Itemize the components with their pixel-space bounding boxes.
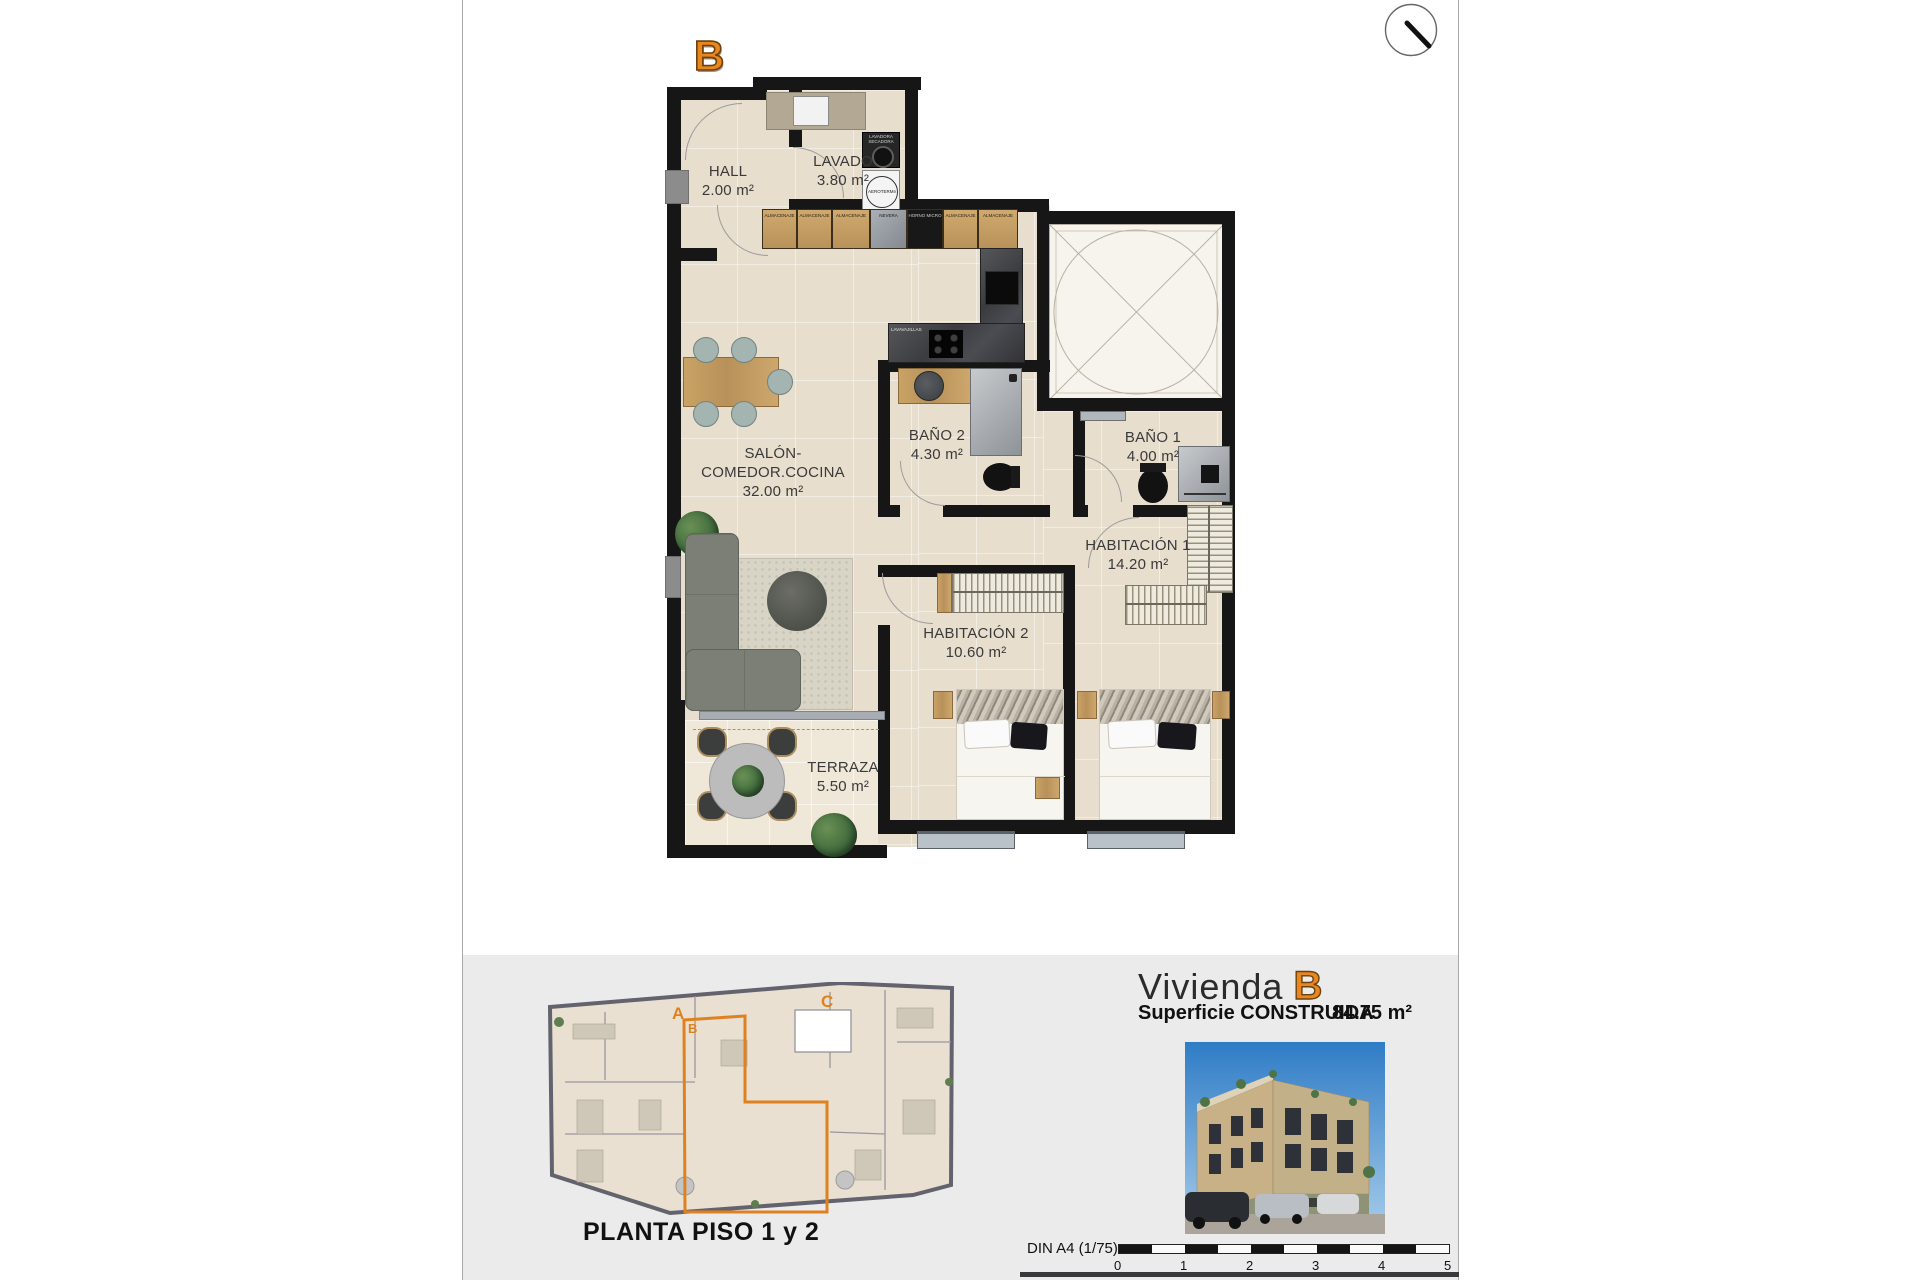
bed-accent-pillow — [1010, 722, 1048, 750]
building-photo-drawing — [1185, 1042, 1385, 1234]
induction-hob-icon — [929, 330, 963, 358]
nightstand — [1212, 691, 1230, 719]
shower-rail-icon — [1184, 493, 1226, 495]
hab1-window — [1087, 831, 1185, 849]
sliding-glass-door — [699, 711, 885, 720]
overview-title: PLANTA PISO 1 y 2 — [583, 1218, 819, 1247]
surface-value: 84.75 m² — [1332, 1002, 1412, 1025]
room-label-terraza: TERRAZA5.50 m² — [801, 759, 885, 797]
cabinet-storage: ALMACENAJE — [797, 209, 832, 249]
terrace-plant — [811, 813, 857, 857]
room-label-bano1: BAÑO 14.00 m² — [1111, 429, 1195, 467]
wall-bath2-bottom-b — [943, 505, 1050, 517]
overview-mini-plan: A B C — [545, 982, 960, 1217]
patio-diagonals-icon — [1050, 225, 1223, 399]
cabinet-storage: ALMACENAJE — [978, 209, 1018, 249]
dishwasher-label: LAVAVAJILLAS — [891, 327, 931, 332]
wall-hall-bottom-stub — [667, 248, 717, 261]
bath2-basin-icon — [914, 371, 944, 401]
bedroom-stool — [1035, 777, 1060, 799]
wall-under-patio — [1037, 398, 1235, 411]
dining-chair — [767, 369, 793, 395]
wall-lavado-top — [753, 77, 921, 90]
fridge: NEVERA — [870, 209, 907, 249]
room-label-lavado: LAVADO3.80 m² — [801, 153, 885, 191]
scale-tick: 1 — [1180, 1258, 1187, 1273]
scale-tick: 5 — [1444, 1258, 1451, 1273]
bed-pillow — [963, 719, 1010, 749]
scale-bar — [1118, 1244, 1450, 1254]
duvet-fold — [1100, 776, 1212, 777]
terrace-plant-center — [732, 765, 764, 797]
wall-patio-top — [1037, 211, 1235, 224]
overview-unit-a-label: A — [672, 1004, 684, 1024]
dining-chair — [731, 401, 757, 427]
hab2-bed — [956, 689, 1064, 820]
scale-tick: 4 — [1378, 1258, 1385, 1273]
bed-throw — [1100, 690, 1210, 724]
washer-dryer-label: LAVADORA SECADORA — [864, 134, 898, 144]
sofa-chaise — [685, 649, 801, 711]
wall-patio-left — [1037, 211, 1049, 411]
hab1-bed — [1099, 689, 1211, 820]
cabinet-storage: ALMACENAJE — [943, 209, 978, 249]
entry-door-mark — [665, 170, 689, 204]
room-label-salon: SALÓN-COMEDOR.COCINA32.00 m² — [673, 445, 873, 501]
wall-patio-right — [1222, 211, 1235, 423]
scale-tick: 2 — [1246, 1258, 1253, 1273]
wall-hab-divider — [1063, 565, 1075, 820]
room-label-hab2: HABITACIÓN 210.60 m² — [909, 625, 1043, 663]
scale-tick: 0 — [1114, 1258, 1121, 1273]
room-label-hall: HALL2.00 m² — [691, 163, 765, 201]
wall-terrace-bottom — [667, 845, 887, 858]
hab2-wardrobe — [952, 573, 1064, 613]
overview-unit-c-label: C — [821, 992, 833, 1012]
wall-hab1-top-a — [1073, 505, 1088, 517]
oven-microwave: HORNO MICRO — [907, 209, 943, 249]
scale-tick: 3 — [1312, 1258, 1319, 1273]
dining-chair — [693, 401, 719, 427]
page-border-right — [1458, 0, 1459, 1280]
wall-terrace-left — [667, 700, 685, 858]
north-indicator-icon — [1384, 3, 1438, 57]
nightstand — [933, 691, 953, 719]
north-indicator — [1384, 3, 1438, 57]
dining-chair — [693, 337, 719, 363]
wall-hall-top — [667, 87, 767, 100]
wall-salon-divider-upper — [878, 360, 890, 505]
bath1-toilet-icon — [1138, 469, 1168, 503]
room-label-hab1: HABITACIÓN 114.20 m² — [1071, 537, 1205, 575]
unit-letter-badge: B — [694, 32, 724, 80]
wardrobe-side-panel — [937, 573, 952, 613]
building-photo — [1185, 1042, 1385, 1234]
bed-accent-pillow — [1157, 722, 1197, 751]
oven-icon — [985, 271, 1019, 305]
room-label-bano2: BAÑO 24.30 m² — [897, 427, 977, 465]
coffee-table — [767, 571, 827, 631]
patio-courtyard — [1049, 224, 1224, 400]
scale-label: DIN A4 (1/75) — [1027, 1240, 1118, 1257]
bath-window — [1080, 411, 1126, 421]
cabinet-storage: ALMACENAJE — [832, 209, 870, 249]
wall-bath2-bottom-a — [878, 505, 900, 517]
bath2-cistern-icon — [1011, 466, 1020, 488]
bed-throw — [957, 690, 1063, 724]
shower-fixture-icon — [1201, 465, 1219, 483]
wall-lavado-right — [905, 77, 918, 211]
overview-unit-b-label: B — [688, 1021, 697, 1036]
footer-bottom-rule — [1020, 1272, 1459, 1277]
dining-table — [683, 357, 779, 407]
floor-plan: LAVADORA SECADORA AEROTERMIA ALMACENAJE … — [663, 75, 1243, 865]
bed-pillow — [1107, 719, 1156, 749]
hab2-window — [917, 831, 1015, 849]
bath2-shower — [970, 368, 1022, 456]
laundry-sink — [793, 96, 829, 126]
dining-chair — [731, 337, 757, 363]
nightstand — [1077, 691, 1097, 719]
wall-utility-mark — [665, 556, 681, 598]
hab1-wardrobe-inner — [1125, 585, 1207, 625]
cabinet-storage: ALMACENAJE — [762, 209, 797, 249]
shower-head-icon — [1009, 374, 1017, 382]
overview-mini-plan-drawing — [545, 982, 960, 1217]
kitchen-cabinet-row: ALMACENAJE ALMACENAJE ALMACENAJE NEVERA … — [762, 209, 1018, 249]
